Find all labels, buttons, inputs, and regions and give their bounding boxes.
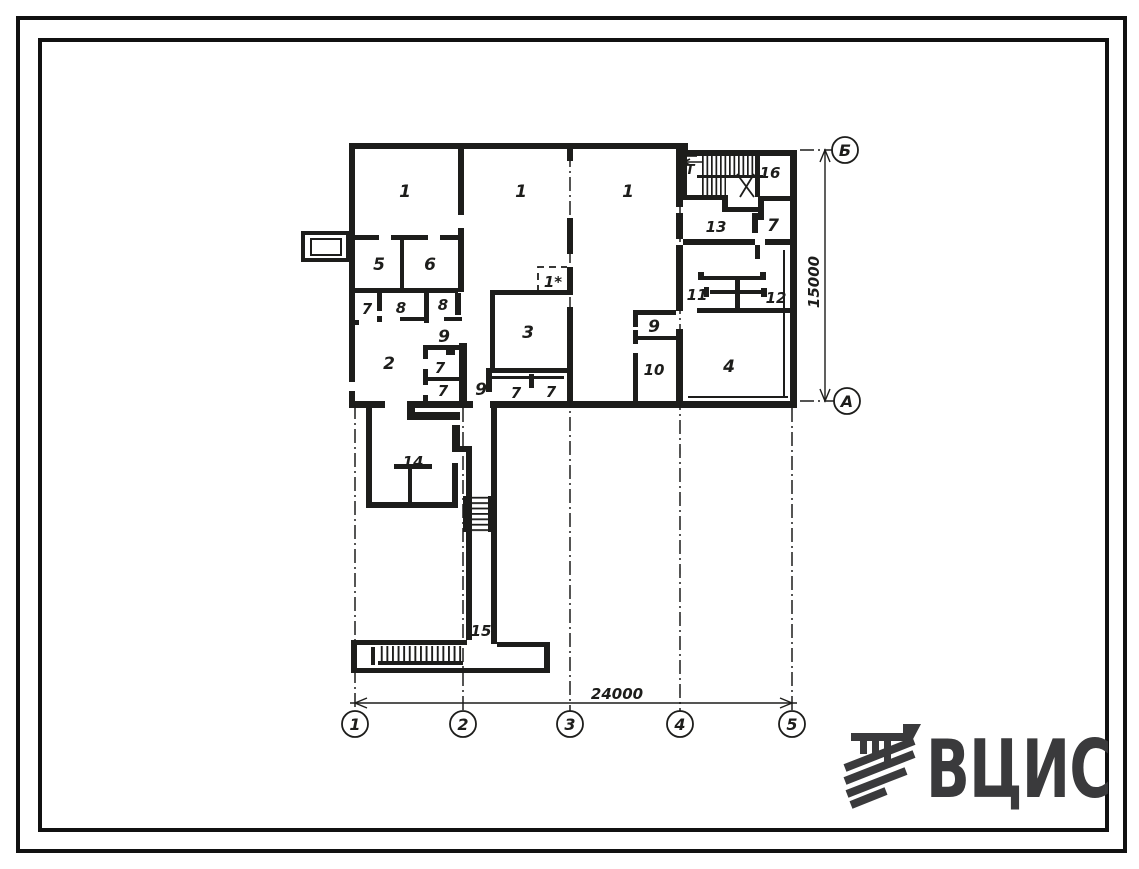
room-label: 7 [546,383,557,401]
room-label: 14 [403,453,424,471]
room-label: 8 [396,299,406,317]
logo: ВЦИС [845,724,1111,817]
room-label: 16 [760,164,781,182]
axis-label-2: 2 [457,715,468,734]
room-label: 3 [522,323,534,343]
logo-text: ВЦИС [926,724,1111,817]
room-label: 13 [706,218,727,236]
axis-lines [355,150,834,711]
drawing-sheet: 24000 15000 1 2 3 4 5 Б А 1 1 1 16 13 7 … [0,0,1139,869]
dimension-vertical: 15000 [805,256,823,308]
room-label: 7 [362,300,373,318]
axis-label-3: 3 [564,715,575,734]
room-label: 7 [511,384,522,402]
bottom-stair-flight [378,646,463,662]
room-label: 1 [622,182,634,202]
dimension-lines [350,150,830,708]
axis-label-4: 4 [673,715,685,734]
floor-plan-walls [349,143,797,673]
corridor-stair-flight [472,496,491,532]
lower-stair-flight [700,178,726,196]
room-label: 11 [687,286,708,304]
axis-label-5: 5 [786,715,797,734]
room-label: 9 [648,317,660,337]
upper-stair-flight [700,152,755,175]
room-label: 15 [471,622,492,640]
room-label: 7 [435,359,446,377]
axis-label-1: 1 [349,715,360,734]
axis-label-A: А [839,392,853,411]
logo-icon-stripes [845,741,914,805]
room-label: 7 [438,382,449,400]
room-label: 5 [373,255,385,275]
room-label: 2 [383,354,395,374]
room-label: 7 [767,216,779,236]
blueprint-canvas: 24000 15000 1 2 3 4 5 Б А 1 1 1 16 13 7 … [0,0,1139,869]
entry-label: Т [686,163,696,178]
room-label: 1 [515,182,527,202]
room-label: 4 [722,357,735,377]
room-label: 1 [399,182,411,202]
axis-label-B: Б [839,141,851,160]
dimension-horizontal: 24000 [591,685,643,703]
room-label: 9 [438,327,450,347]
porch [303,233,348,260]
room-label: 1* [544,273,562,291]
room-label: 6 [424,255,436,275]
room-label: 8 [438,296,448,314]
room-label: 12 [766,289,787,307]
room-label: 10 [644,361,665,379]
room-label: 9 [475,380,487,400]
